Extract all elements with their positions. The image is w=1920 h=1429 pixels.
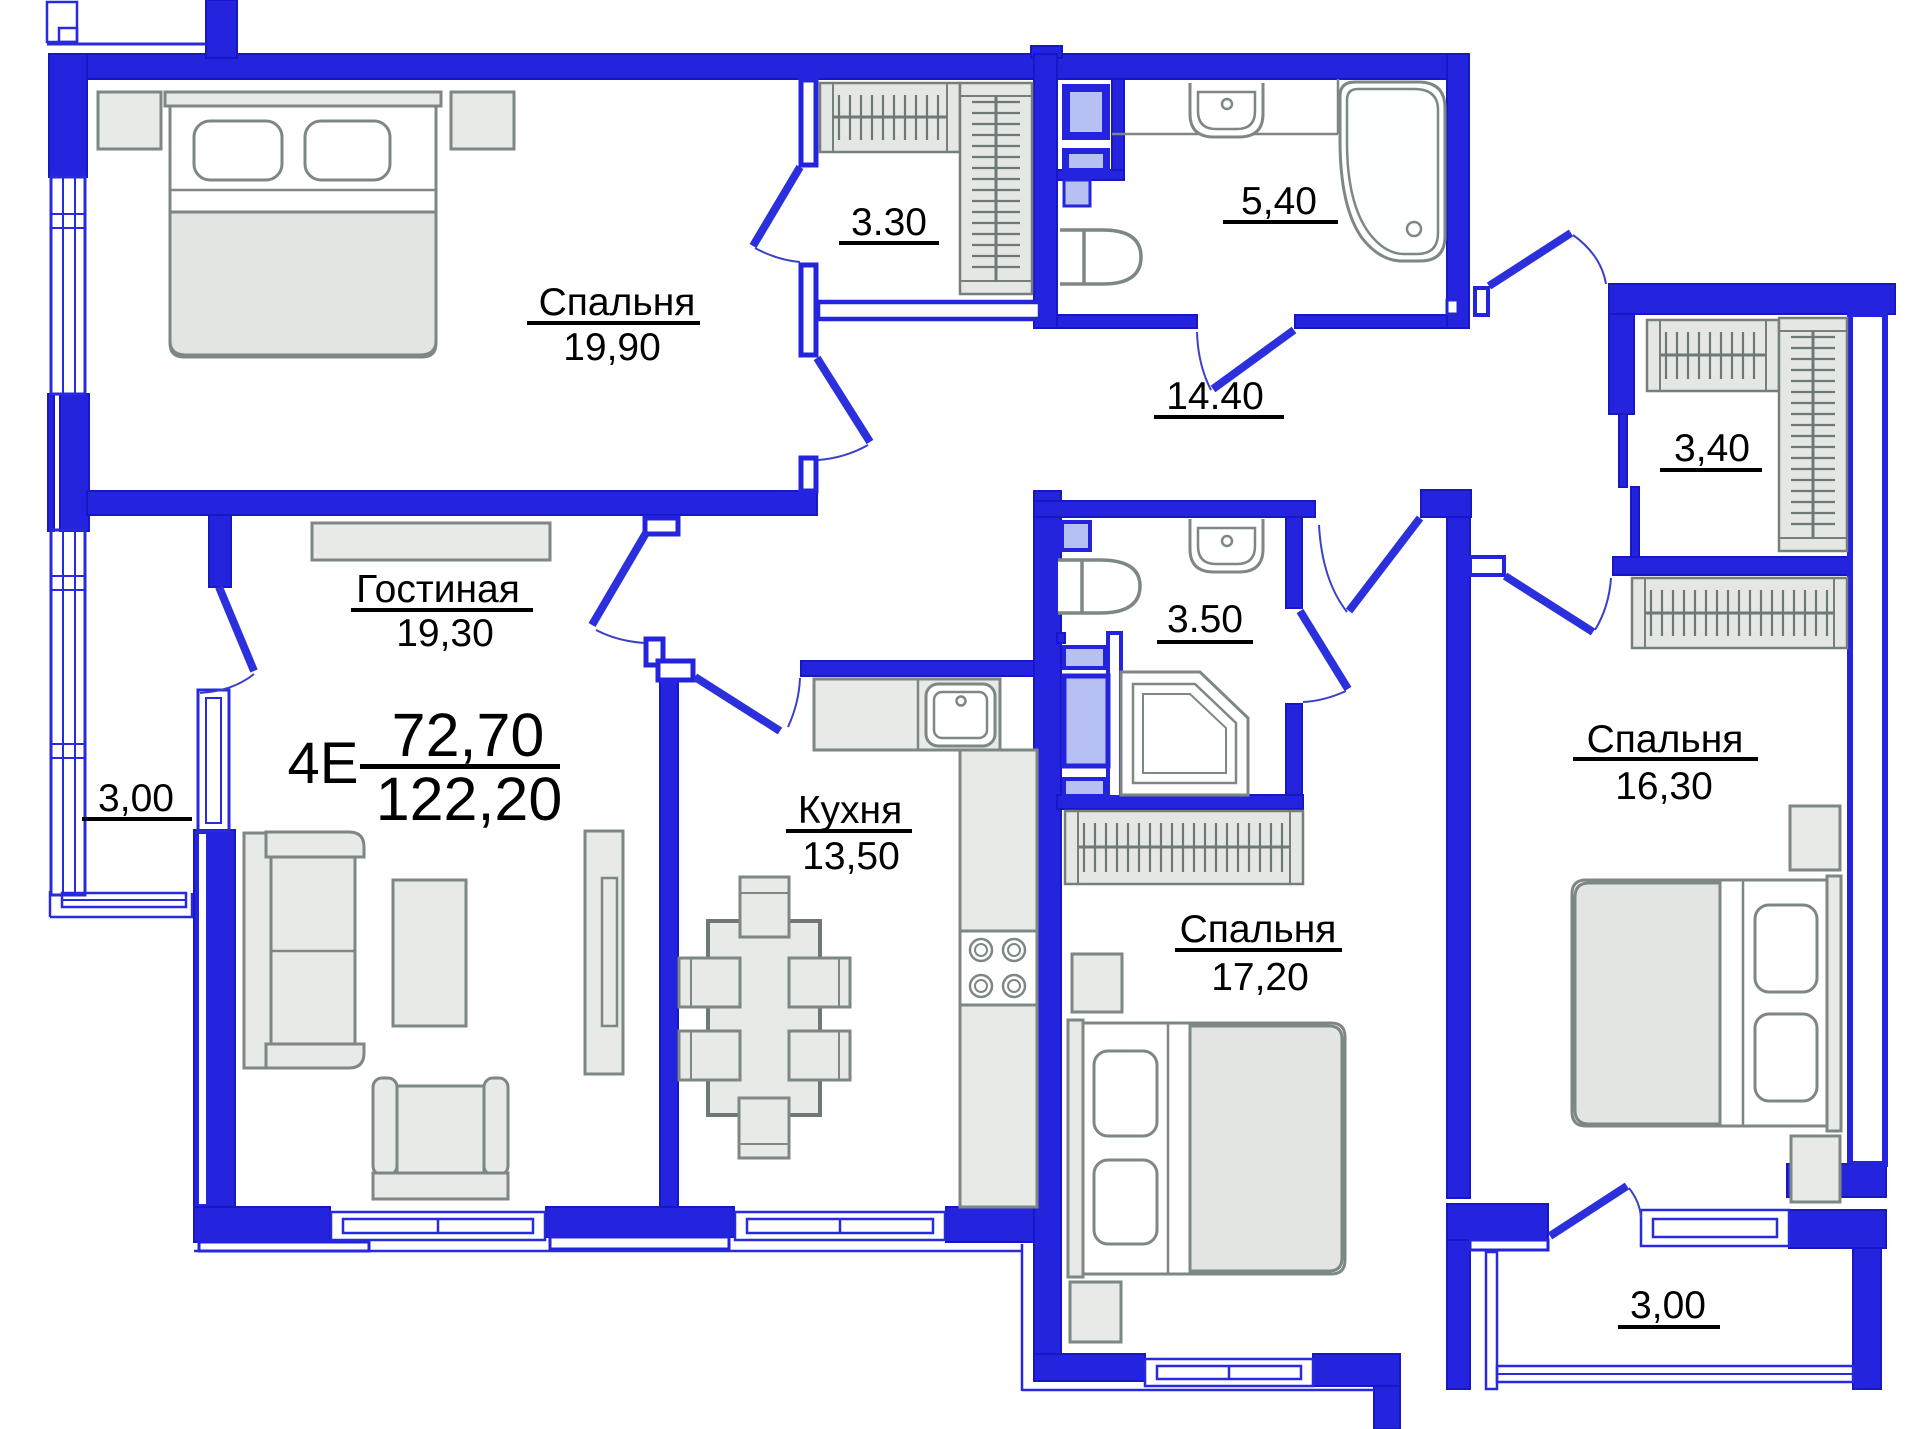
svg-text:5,40: 5,40 [1241, 180, 1317, 223]
svg-text:3,40: 3,40 [1674, 427, 1750, 470]
svg-text:3,00: 3,00 [98, 777, 174, 820]
svg-text:Спальня: Спальня [1180, 908, 1337, 951]
svg-text:Спальня: Спальня [1587, 718, 1744, 761]
svg-text:4Е: 4Е [288, 731, 359, 796]
svg-text:122,20: 122,20 [376, 765, 563, 833]
svg-text:Спальня: Спальня [539, 281, 696, 324]
svg-text:19,30: 19,30 [396, 612, 494, 655]
svg-text:3.30: 3.30 [851, 201, 927, 244]
svg-text:19,90: 19,90 [563, 326, 661, 369]
svg-text:13,50: 13,50 [802, 835, 900, 878]
svg-text:Кухня: Кухня [798, 789, 902, 832]
svg-text:3.50: 3.50 [1167, 598, 1243, 641]
svg-text:72,70: 72,70 [392, 701, 545, 769]
svg-text:3,00: 3,00 [1630, 1284, 1706, 1327]
svg-text:17,20: 17,20 [1211, 956, 1309, 999]
svg-text:16,30: 16,30 [1615, 765, 1713, 808]
svg-text:14.40: 14.40 [1166, 375, 1264, 418]
svg-text:Гостиная: Гостиная [356, 568, 520, 611]
